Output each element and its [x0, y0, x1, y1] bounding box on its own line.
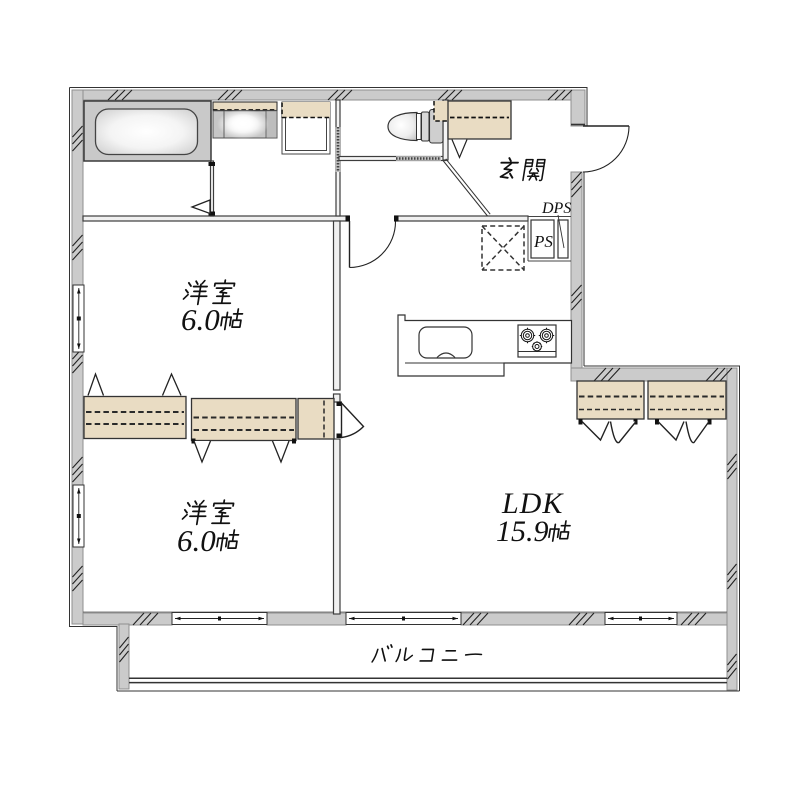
svg-text:6.0: 6.0: [181, 302, 220, 337]
svg-text:6.0: 6.0: [177, 523, 216, 558]
svg-text:15.9: 15.9: [496, 515, 549, 548]
svg-text:PS: PS: [533, 232, 553, 251]
svg-text:DPS: DPS: [541, 200, 571, 217]
